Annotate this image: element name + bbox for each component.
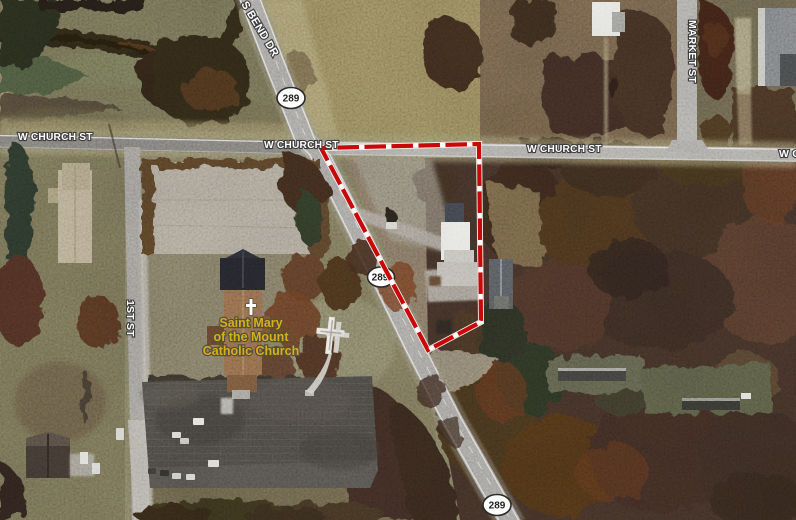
svg-text:289: 289	[489, 501, 506, 512]
svg-text:of the Mount: of the Mount	[214, 330, 290, 344]
svg-text:MARKET ST: MARKET ST	[686, 20, 698, 83]
svg-text:W CH: W CH	[779, 148, 796, 160]
svg-text:289: 289	[283, 94, 300, 105]
svg-text:W CHURCH ST: W CHURCH ST	[264, 140, 339, 151]
svg-text:W CHURCH ST: W CHURCH ST	[18, 132, 93, 143]
svg-text:1ST ST: 1ST ST	[124, 300, 136, 337]
svg-text:Saint Mary: Saint Mary	[219, 316, 282, 330]
svg-text:W CHURCH ST: W CHURCH ST	[527, 144, 602, 155]
svg-text:Catholic Church: Catholic Church	[203, 344, 300, 358]
